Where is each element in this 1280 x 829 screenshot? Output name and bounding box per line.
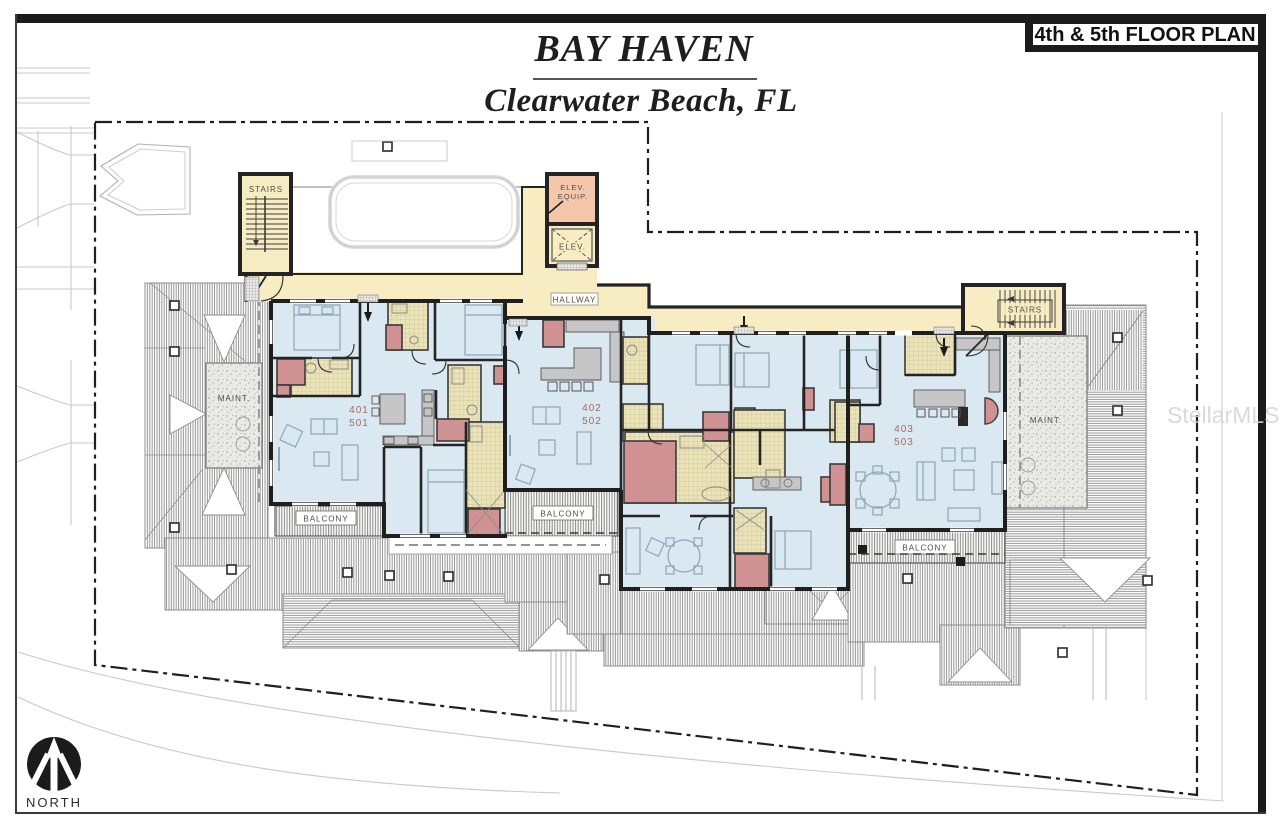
svg-text:MAINT.: MAINT. <box>1030 416 1062 425</box>
svg-text:ELEV.: ELEV. <box>560 183 586 192</box>
svg-text:BALCONY: BALCONY <box>902 544 947 553</box>
svg-text:503: 503 <box>894 437 914 448</box>
svg-text:STAIRS: STAIRS <box>1008 306 1042 315</box>
svg-text:BAY HAVEN: BAY HAVEN <box>533 28 754 70</box>
svg-text:502: 502 <box>582 416 602 427</box>
svg-text:501: 501 <box>349 418 369 429</box>
svg-text:NORTH: NORTH <box>26 795 82 810</box>
svg-text:ELEV.: ELEV. <box>559 243 586 252</box>
svg-text:HALLWAY: HALLWAY <box>553 296 597 305</box>
svg-text:EQUIP.: EQUIP. <box>558 192 588 201</box>
svg-text:BALCONY: BALCONY <box>303 515 348 524</box>
svg-text:4th & 5th FLOOR PLAN: 4th & 5th FLOOR PLAN <box>1034 24 1255 46</box>
svg-text:MAINT.: MAINT. <box>218 394 250 403</box>
svg-text:BALCONY: BALCONY <box>540 510 585 519</box>
svg-text:StellarMLS: StellarMLS <box>1167 402 1279 428</box>
svg-text:401: 401 <box>349 405 369 416</box>
svg-text:Clearwater Beach, FL: Clearwater Beach, FL <box>484 83 797 119</box>
svg-text:STAIRS: STAIRS <box>249 185 283 194</box>
svg-text:402: 402 <box>582 403 602 414</box>
svg-text:403: 403 <box>894 424 914 435</box>
